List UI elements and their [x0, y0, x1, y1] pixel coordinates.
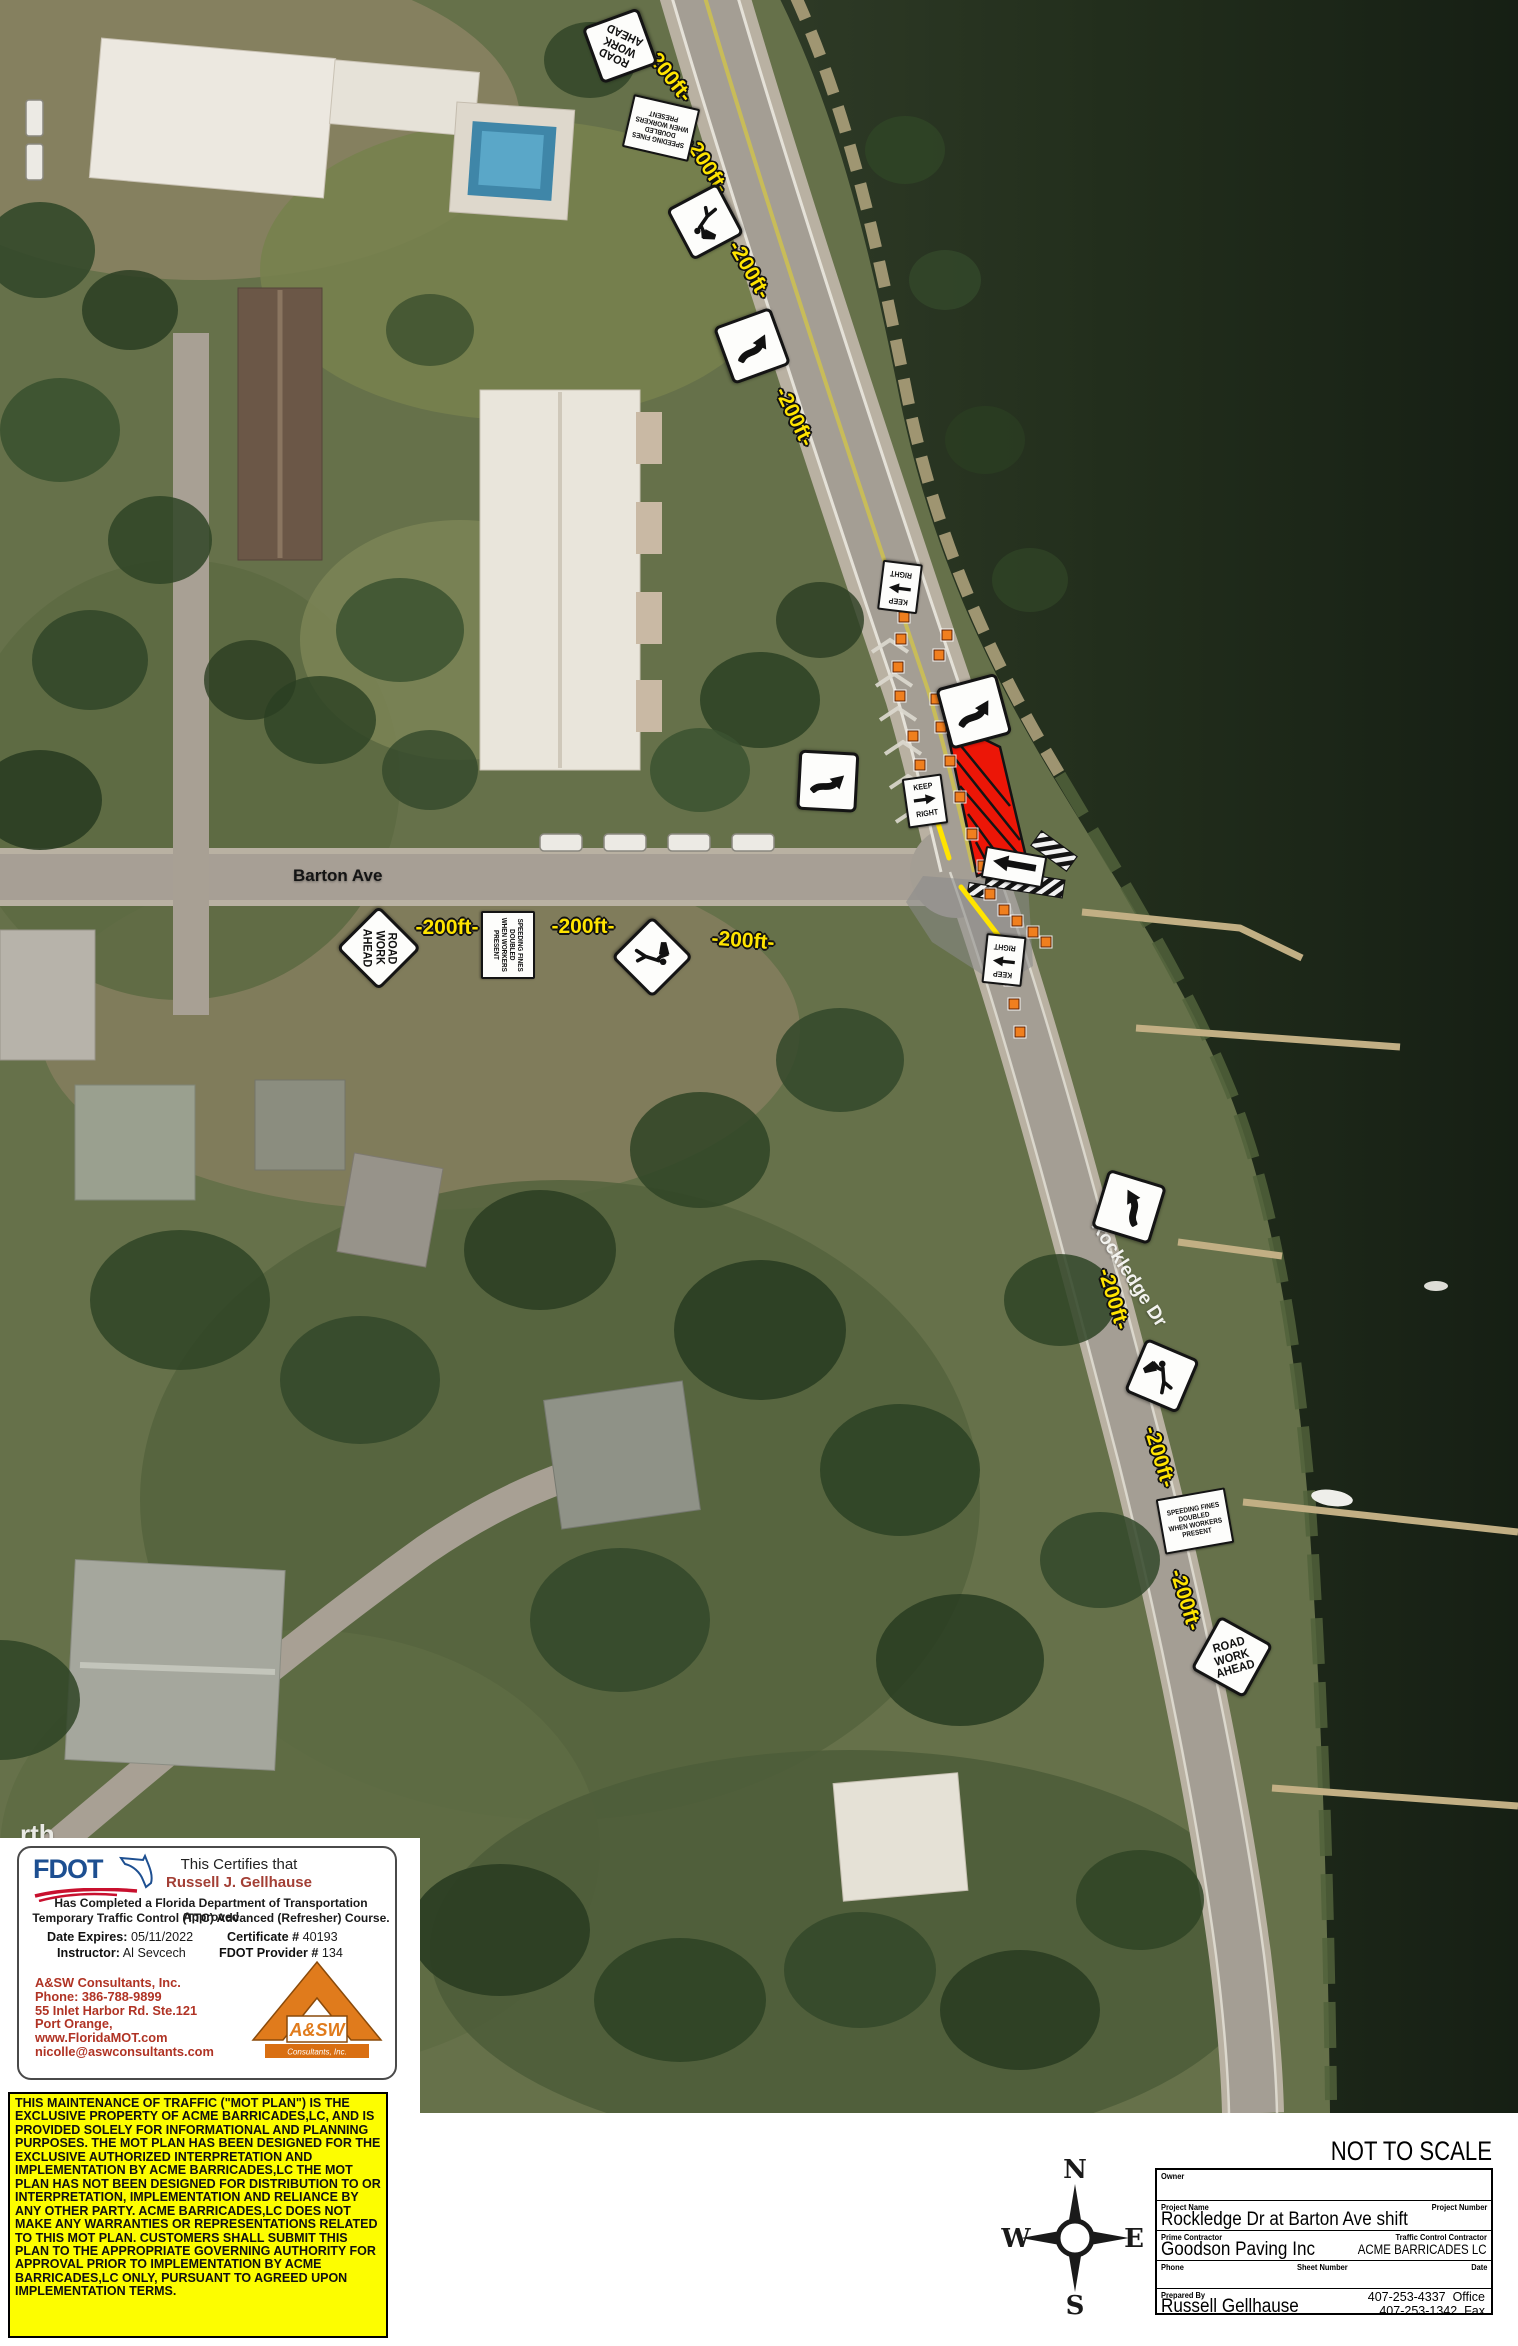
certificate-name: Russell J. Gellhause — [89, 1874, 389, 1891]
keep-right-panel: KEEPRIGHT — [902, 773, 949, 828]
svg-text:Consultants, Inc.: Consultants, Inc. — [287, 2048, 347, 2057]
road-label: Barton Ave — [293, 866, 382, 886]
compass-rose: N S W E — [990, 2158, 1160, 2328]
title-row-contractor: Prime Contractor Traffic Control Contrac… — [1157, 2230, 1491, 2260]
consultants-email: nicolle@aswconsultants.com — [35, 2045, 214, 2059]
left-arrow-icon — [989, 852, 1038, 882]
speeding-fines-panel: SPEEDING FINESDOUBLEDWHEN WORKERSPRESENT — [481, 911, 535, 979]
date-expires: Date Expires: 05/11/2022 — [47, 1930, 193, 1944]
certificate-statement-2: Temporary Traffic Control (TTC) Advanced… — [29, 1911, 394, 1925]
traffic-cone-marker — [985, 889, 996, 900]
compass-west: W — [1000, 2224, 1031, 2254]
traffic-cone-marker — [955, 792, 966, 803]
consultants-name: A&SW Consultants, Inc. — [35, 1976, 214, 1990]
keep-right-panel: KEEPRIGHT — [877, 560, 923, 615]
traffic-cone-marker — [942, 630, 953, 641]
prime-contractor-value: Goodson Paving Inc — [1161, 2239, 1315, 2261]
distance-label: -200ft- — [415, 916, 478, 940]
speeding-fines-panel: SPEEDING FINESDOUBLEDWHEN WORKERSPRESENT — [622, 94, 700, 162]
distance-label: -200ft- — [723, 237, 775, 304]
traffic-cone-marker — [893, 662, 904, 673]
title-row-project: Project Name Project Number Rockledge Dr… — [1157, 2200, 1491, 2230]
traffic-cone-marker — [967, 829, 978, 840]
disclaimer-box: THIS MAINTENANCE OF TRAFFIC ("MOT PLAN")… — [8, 2092, 388, 2338]
traffic-cone-marker — [895, 691, 906, 702]
title-block: Owner Project Name Project Number Rockle… — [1155, 2168, 1493, 2315]
traffic-cone-marker — [945, 756, 956, 767]
traffic-cone-marker — [999, 905, 1010, 916]
distance-label: -200ft- — [1164, 1566, 1205, 1633]
arrow-board-panel — [981, 846, 1048, 888]
office-phone: 407-253-4337 Office — [1368, 2290, 1485, 2304]
traffic-cone-marker — [1041, 937, 1052, 948]
fdot-certificate-card: FDOT This Certifies that Russell J. Gell… — [17, 1846, 397, 2080]
traffic-cone-marker — [915, 760, 926, 771]
consultants-address: 55 Inlet Harbor Rd. Ste.121 — [35, 2004, 214, 2018]
compass-north: N — [1063, 2158, 1087, 2185]
speeding-fines-panel: SPEEDING FINESDOUBLEDWHEN WORKERSPRESENT — [1156, 1487, 1235, 1554]
traffic-cone-marker — [1028, 927, 1039, 938]
flagger-icon — [634, 939, 670, 975]
certificate-heading: This Certifies that — [89, 1856, 389, 1873]
disclaimer-text: THIS MAINTENANCE OF TRAFFIC ("MOT PLAN")… — [15, 2096, 381, 2298]
consultants-city: Port Orange, — [35, 2017, 214, 2031]
distance-label: -200ft- — [1138, 1423, 1179, 1490]
traffic-cone-marker — [934, 650, 945, 661]
prepared-by-value: Russell Gellhause — [1161, 2296, 1299, 2318]
title-row-phone: Phone Sheet Number Date — [1157, 2260, 1491, 2288]
fax-phone: 407-253-1342 Fax — [1379, 2304, 1485, 2318]
road-work-ahead-text: ROADWORKAHEAD — [361, 927, 398, 969]
project-name-value: Rockledge Dr at Barton Ave shift — [1161, 2209, 1408, 2231]
compass-east: E — [1124, 2224, 1144, 2254]
title-row-prepared: Prepared By Russell Gellhause 407-253-43… — [1157, 2288, 1491, 2317]
asw-logo: A&SW Consultants, Inc. — [251, 1960, 383, 2072]
traffic-cone-marker — [1015, 1027, 1026, 1038]
traffic-cone-marker — [1012, 916, 1023, 927]
title-row-owner: Owner — [1157, 2170, 1491, 2200]
mot-plan-page: -200ft--200ft--200ft--200ft--200ft--200f… — [0, 0, 1518, 2346]
svg-text:A&SW: A&SW — [289, 2020, 347, 2040]
instructor: Instructor: Al Sevcech — [57, 1946, 186, 1960]
traffic-cone-marker — [908, 731, 919, 742]
distance-label: -200ft- — [769, 383, 818, 450]
tcc-value: ACME BARRICADES LC — [1358, 2242, 1487, 2257]
consultants-block: A&SW Consultants, Inc. Phone: 386-788-98… — [35, 1976, 214, 2059]
distance-label: -200ft- — [711, 927, 776, 955]
traffic-cone-marker — [896, 634, 907, 645]
fdot-provider: FDOT Provider # 134 — [219, 1946, 343, 1960]
traffic-cone-marker — [1009, 999, 1020, 1010]
distance-label: -200ft- — [551, 915, 614, 939]
keep-right-panel: KEEPRIGHT — [981, 933, 1026, 987]
scale-note: NOT TO SCALE — [1295, 2136, 1492, 2167]
consultants-phone: Phone: 386-788-9899 — [35, 1990, 214, 2004]
certificate-number: Certificate # 40193 — [227, 1930, 338, 1944]
consultants-website: www.FloridaMOT.com — [35, 2031, 214, 2045]
traffic-plan-overlay: -200ft--200ft--200ft--200ft--200ft--200f… — [0, 0, 1518, 2113]
compass-south: S — [1066, 2291, 1085, 2321]
